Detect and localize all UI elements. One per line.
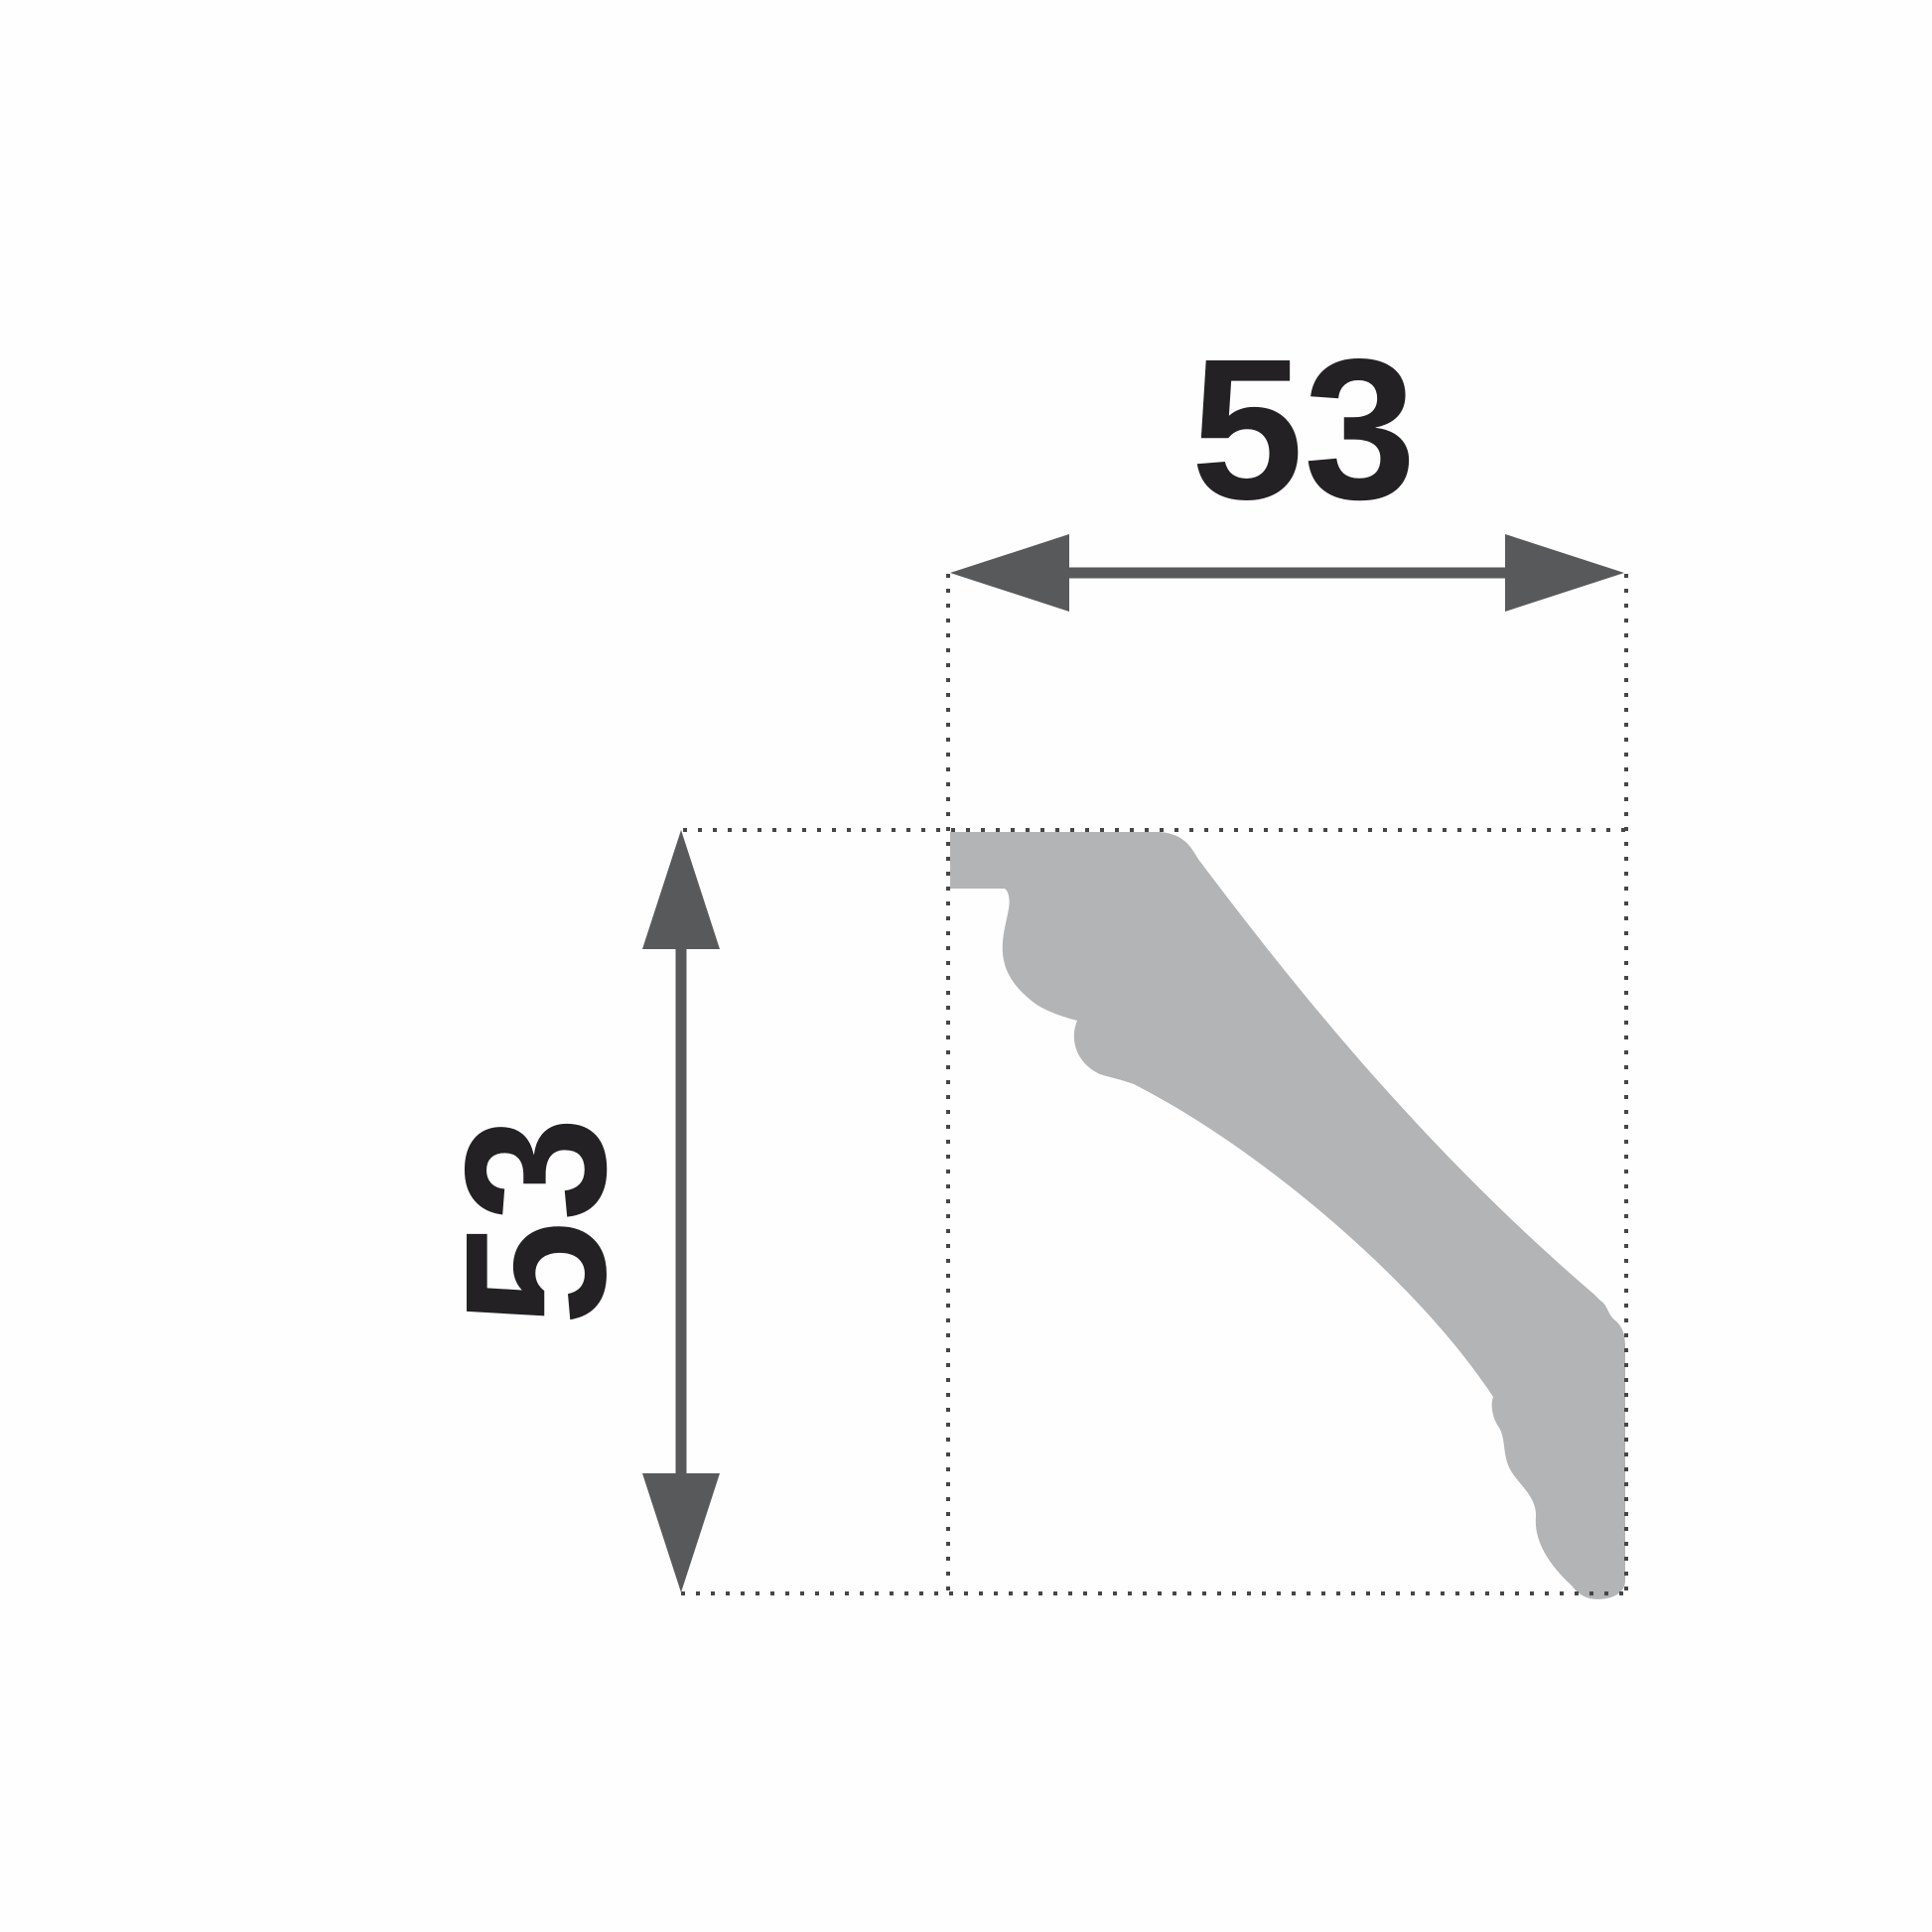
width-dimension-label: 53 [1191,317,1417,541]
height-dimension: 53 [423,830,720,1592]
width-arrowhead-left-icon [950,534,1069,612]
width-dimension: 53 [950,317,1624,612]
height-dimension-label: 53 [423,1117,647,1325]
molding-dimension-drawing: 53 53 [0,0,1932,1932]
width-arrowhead-right-icon [1505,534,1624,612]
molding-profile-shape [950,832,1625,1599]
height-arrowhead-top-icon [642,830,720,949]
molding-profile-diagram: 53 53 [0,0,1932,1932]
height-arrowhead-bottom-icon [642,1473,720,1592]
